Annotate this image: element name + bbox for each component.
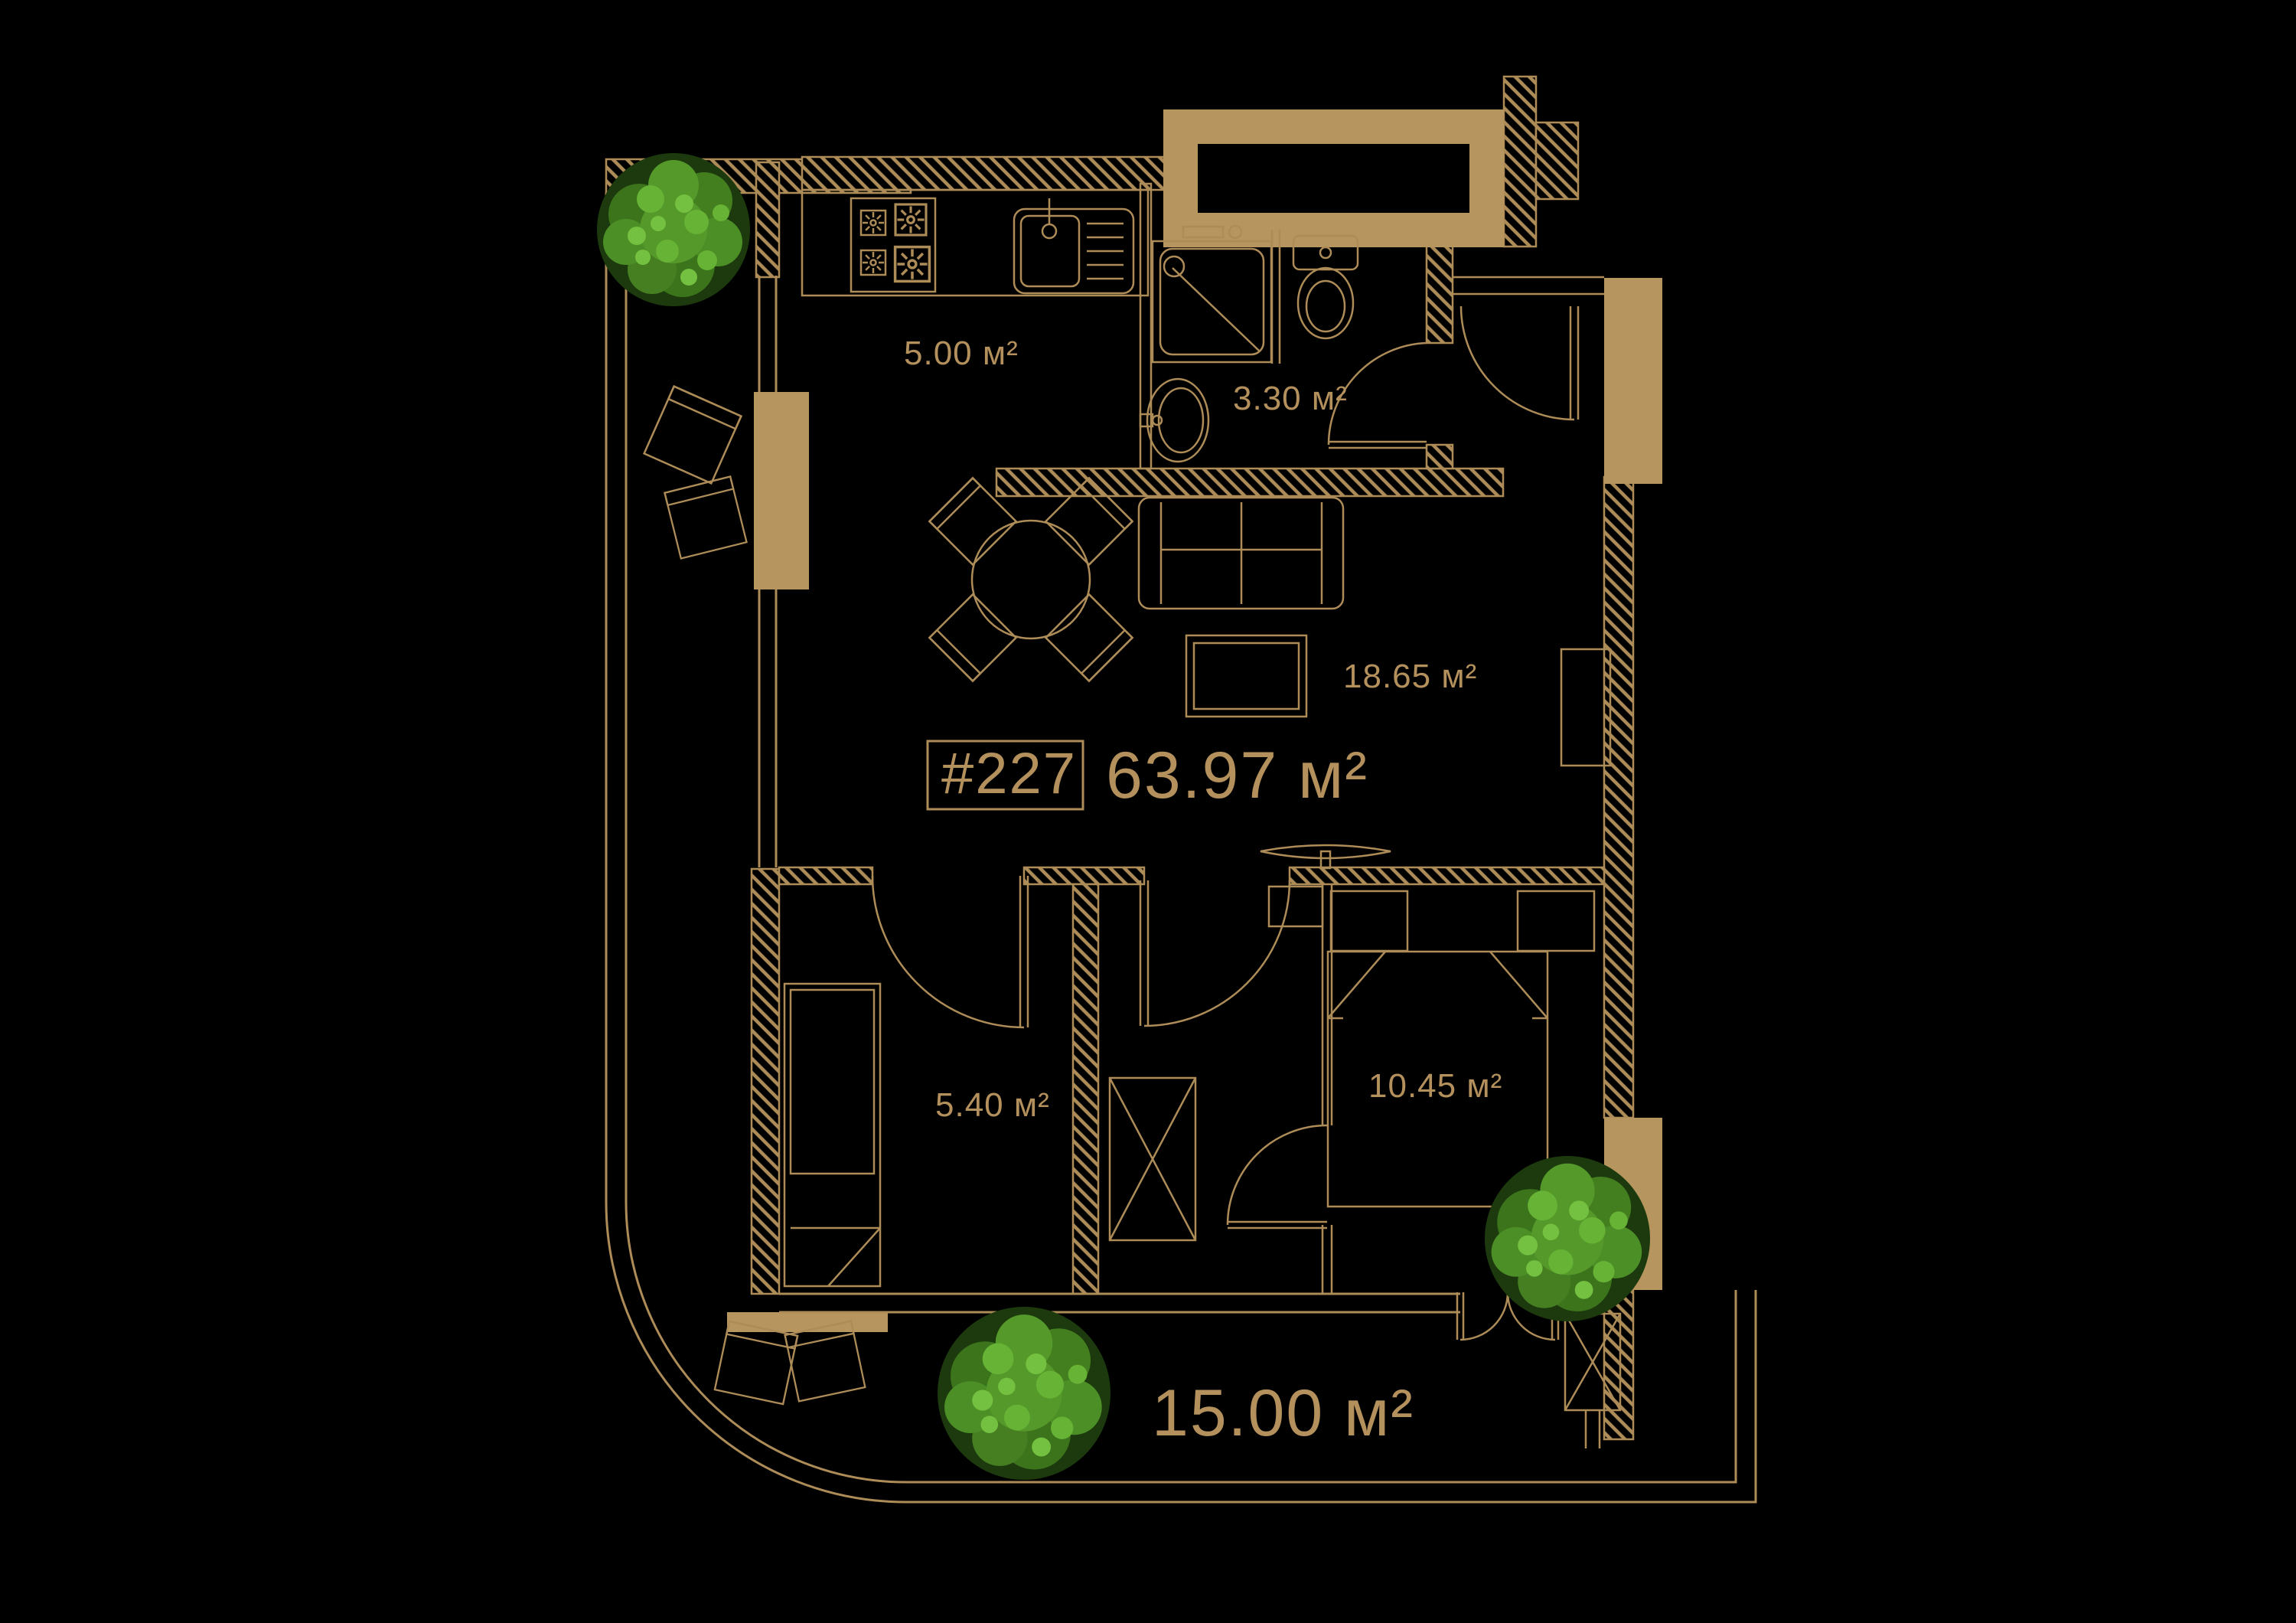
room-label-kitchen: 5.00 м² <box>904 335 1019 372</box>
tree-icon <box>597 153 750 306</box>
floor-plan-canvas: 5.00 м² 3.30 м² 18.65 м² 5.40 м² 10.45 м… <box>0 0 2296 1623</box>
room-label-living-room: 18.65 м² <box>1343 658 1477 695</box>
floor-plan-page: 5.00 м² 3.30 м² 18.65 м² 5.40 м² 10.45 м… <box>0 0 2296 1623</box>
sill-bottom-left <box>727 1312 888 1332</box>
room-label-bedroom: 10.45 м² <box>1368 1067 1502 1105</box>
room-label-terrace: 15.00 м² <box>1152 1376 1414 1450</box>
apartment-number: #227 <box>941 741 1077 806</box>
column-entry <box>1604 278 1662 484</box>
total-area-label: 63.97 м² <box>1106 739 1368 812</box>
room-label-bathroom: 3.30 м² <box>1233 380 1348 417</box>
column-left <box>754 392 809 589</box>
room-label-bedroom-small: 5.40 м² <box>935 1086 1050 1124</box>
tree-icon <box>938 1307 1110 1480</box>
tree-icon <box>1485 1156 1650 1321</box>
